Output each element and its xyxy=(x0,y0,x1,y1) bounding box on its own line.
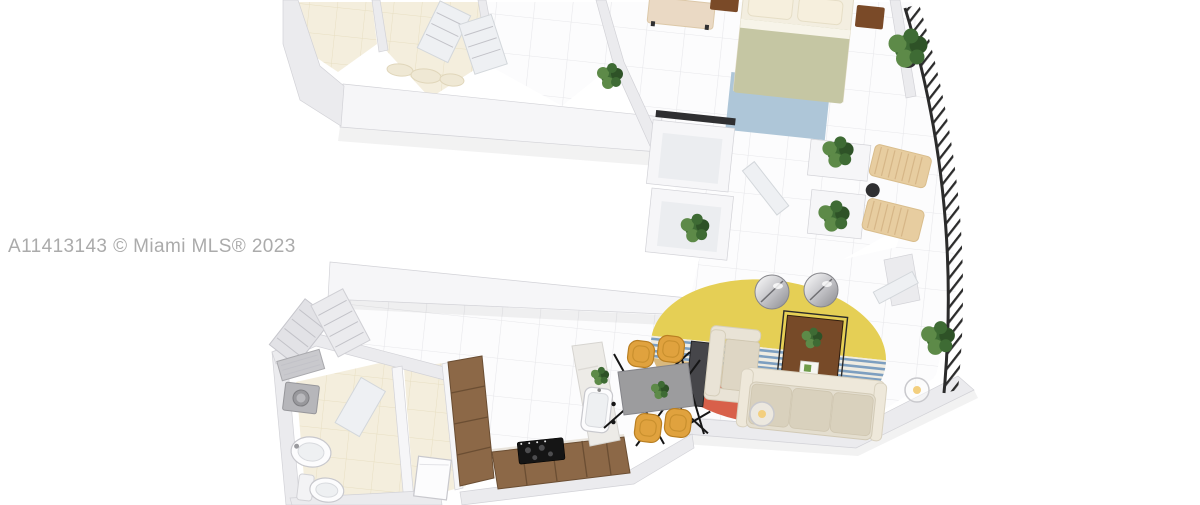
pillow-right xyxy=(797,0,843,25)
pendant-lamp-right xyxy=(804,273,838,307)
nightstand-right xyxy=(855,5,885,30)
washer xyxy=(282,382,319,414)
cooktop xyxy=(517,438,565,465)
floor-lamp-left xyxy=(750,402,774,426)
floor-lamp-right xyxy=(905,378,929,402)
water-heater-box xyxy=(414,456,452,500)
pendant-lamp-left xyxy=(755,275,789,309)
dining-chair xyxy=(663,408,692,439)
floor-plan-rendering xyxy=(0,0,1200,505)
dining-chair xyxy=(657,335,686,364)
dining-chair xyxy=(633,413,662,444)
dining-chair xyxy=(627,340,656,369)
